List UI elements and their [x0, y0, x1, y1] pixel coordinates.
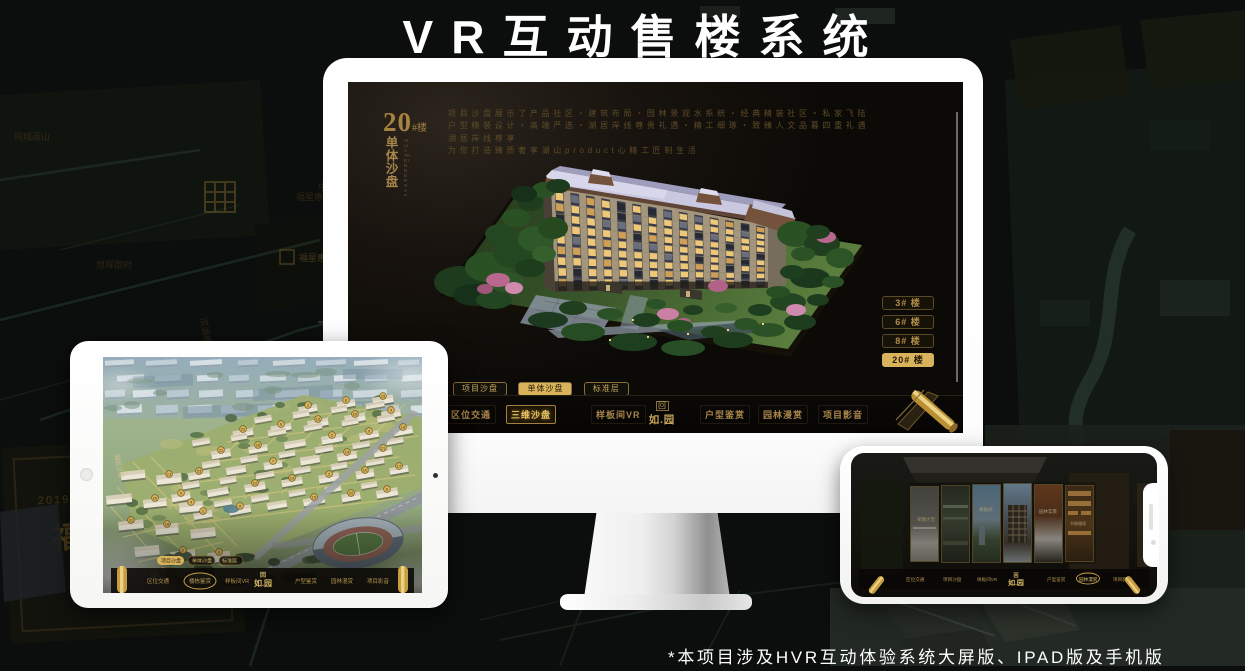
- svg-text:楼栋鉴赏: 楼栋鉴赏: [189, 577, 212, 585]
- svg-text:项目影音: 项目影音: [367, 577, 390, 585]
- svg-text:如.园: 如.园: [1008, 578, 1024, 587]
- svg-text:区位交通: 区位交通: [906, 576, 925, 583]
- svg-text:项目沙盘: 项目沙盘: [161, 558, 181, 565]
- svg-text:户型鉴赏: 户型鉴赏: [295, 577, 318, 585]
- svg-text:同城阅山: 同城阅山: [14, 132, 50, 142]
- svg-text:旭辉御府: 旭辉御府: [96, 259, 132, 270]
- svg-text:项目沙盘: 项目沙盘: [943, 576, 962, 583]
- svg-text:园林漫赏: 园林漫赏: [331, 577, 354, 585]
- svg-text:户型鉴赏: 户型鉴赏: [1047, 576, 1066, 583]
- svg-text:如.园: 如.园: [254, 578, 272, 588]
- svg-text:样板间VR: 样板间VR: [977, 576, 998, 583]
- svg-text:标准层: 标准层: [222, 558, 237, 565]
- svg-text:样板间VR: 样板间VR: [225, 577, 249, 585]
- svg-text:区位交通: 区位交通: [147, 577, 170, 585]
- svg-text:单体沙盘: 单体沙盘: [192, 558, 212, 565]
- svg-text:回: 回: [1013, 572, 1018, 579]
- svg-text:回: 回: [260, 571, 266, 579]
- svg-text:项目影音: 项目影音: [1113, 576, 1132, 583]
- svg-text:园林漫赏: 园林漫赏: [1079, 576, 1098, 583]
